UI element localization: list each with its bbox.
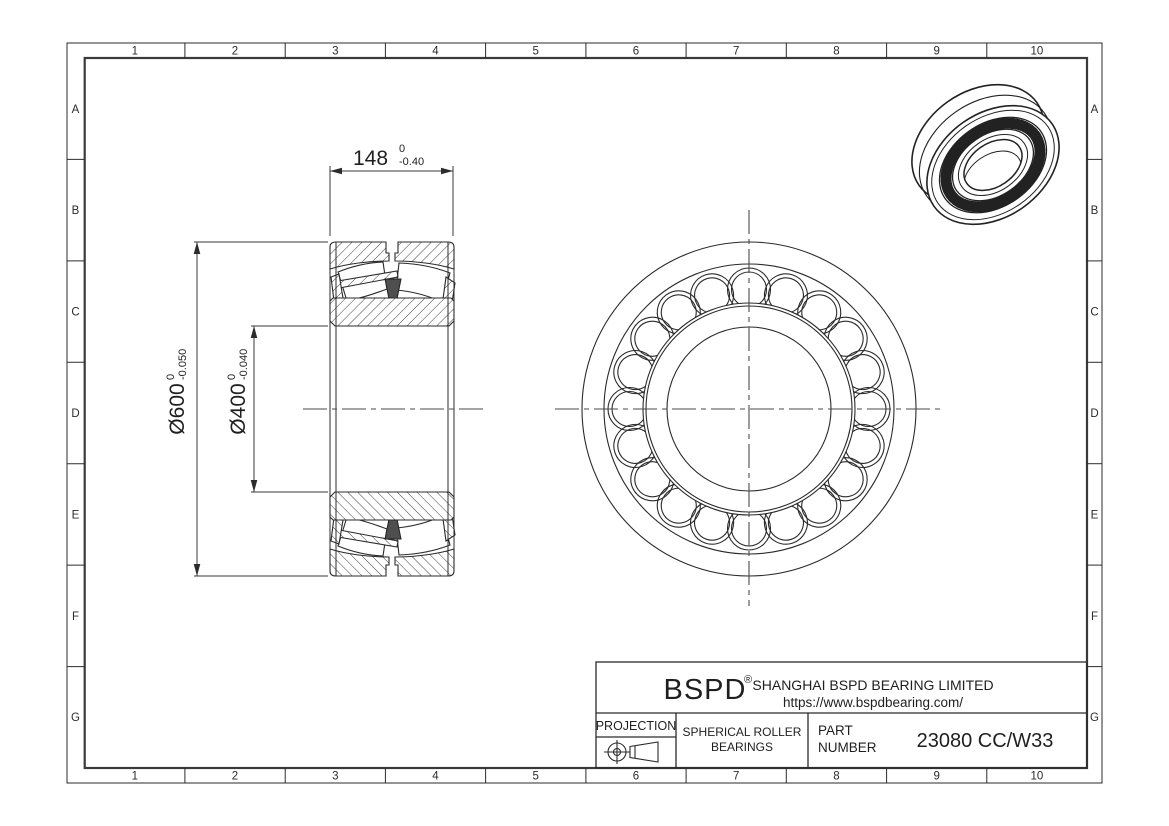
grid-col-label: 6 [633,771,639,783]
grid-row-label: E [72,510,80,522]
grid-row-label: C [1090,307,1098,319]
grid-col-label: 7 [733,771,739,783]
grid-row-label: A [72,104,80,116]
grid-ref-left: A B C D E F G [71,104,80,724]
od-tol-lower: -0.050 [177,349,189,380]
part-label-line2: NUMBER [818,740,877,755]
projection-symbol-icon [604,740,658,764]
grid-ref-top: 1 2 3 4 5 6 7 8 9 10 [132,46,1044,58]
grid-col-label: 4 [432,771,439,783]
grid-col-label: 5 [532,46,538,58]
grid-row-label: B [72,205,80,217]
grid-row-label: D [71,408,79,420]
grid-col-label: 2 [232,771,238,783]
grid-row-label: A [1091,104,1099,116]
company-name: SHANGHAI BSPD BEARING LIMITED [752,677,993,693]
bore-tol-lower: -0.040 [238,349,250,380]
grid-col-label: 10 [1031,771,1044,783]
roller-section [396,263,450,302]
grid-col-label: 3 [332,771,338,783]
title-block: BSPD ® SHANGHAI BSPD BEARING LIMITED htt… [596,662,1087,768]
bore-dimension-value: Ø400 [227,383,250,434]
grid-col-label: 8 [833,46,839,58]
grid-ref-right: A B C D E F G [1090,104,1099,724]
grid-row-label: C [71,307,79,319]
product-type-line2: BEARINGS [711,740,773,754]
grid-row-label: E [1091,510,1099,522]
grid-row-label: D [1090,408,1098,420]
part-label-line1: PART [818,723,853,738]
grid-col-label: 2 [232,46,238,58]
grid-ref-bottom: 1 2 3 4 5 6 7 8 9 10 [132,771,1044,783]
grid-col-label: 10 [1031,46,1044,58]
grid-col-label: 1 [132,771,138,783]
grid-row-label: F [1091,611,1098,623]
cage-center-section [385,279,401,299]
brand-logo: BSPD [664,674,747,706]
drawing-sheet: 1 2 3 4 5 6 7 8 9 10 1 2 3 4 5 6 7 8 9 1… [0,0,1169,826]
grid-row-label: F [72,611,79,623]
company-website: https://www.bspdbearing.com/ [783,695,963,710]
grid-col-label: 5 [532,771,538,783]
inner-ring-section [330,298,454,326]
grid-col-label: 1 [132,46,138,58]
grid-col-label: 7 [733,46,739,58]
product-type-line1: SPHERICAL ROLLER [683,725,802,739]
grid-col-label: 6 [633,46,639,58]
dimension-width: 148 0 -0.40 [330,143,453,236]
od-tol-upper: 0 [165,374,177,380]
width-tol-lower: -0.40 [399,156,424,168]
grid-col-label: 9 [933,771,939,783]
front-view [555,210,945,606]
grid-col-label: 8 [833,771,839,783]
grid-row-label: G [71,712,80,724]
section-bottom-half [330,492,455,576]
od-dimension-value: Ø600 [166,383,189,434]
grid-row-label: B [1091,205,1099,217]
grid-col-label: 3 [332,46,338,58]
iso-view [889,60,1082,249]
engineering-drawing: 1 2 3 4 5 6 7 8 9 10 1 2 3 4 5 6 7 8 9 1… [0,0,1169,826]
bore-tol-upper: 0 [226,374,238,380]
grid-col-label: 4 [432,46,439,58]
section-top-half [330,242,455,326]
section-view [303,242,483,576]
registered-mark: ® [744,674,752,686]
grid-row-label: G [1090,712,1099,724]
projection-label: PROJECTION [596,719,677,733]
width-dimension-value: 148 [353,147,388,170]
grid-col-label: 9 [933,46,939,58]
width-tol-upper: 0 [399,143,405,155]
part-number-value: 23080 CC/W33 [917,730,1054,752]
